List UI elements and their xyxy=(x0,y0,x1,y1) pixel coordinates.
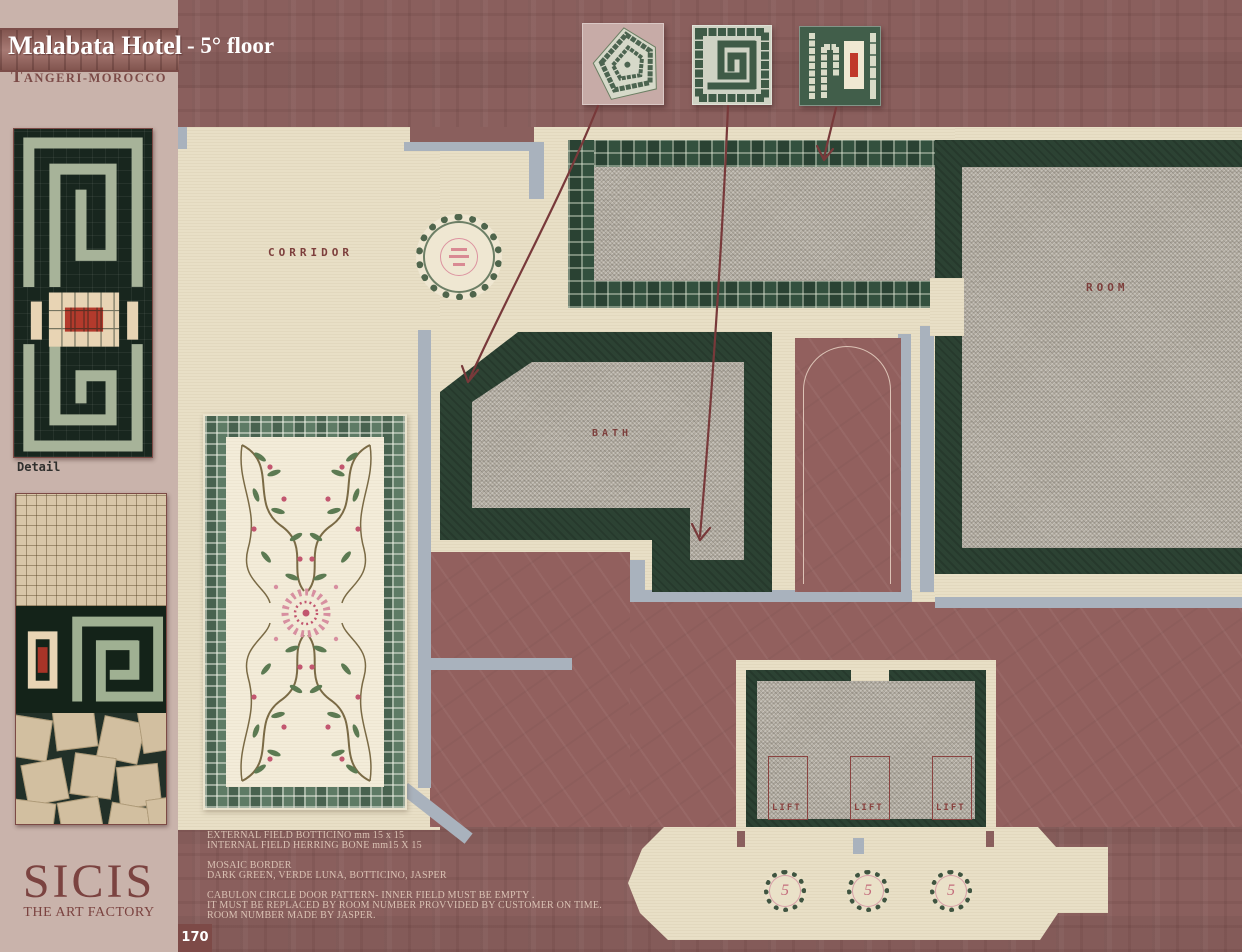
location-label: Tangeri-morocco xyxy=(0,67,178,87)
note-line: ROOM NUMBER MADE BY JASPER. xyxy=(207,911,727,921)
entry-field xyxy=(594,167,955,281)
sicis-logo: SICIS xyxy=(0,858,178,906)
lobby-door-stub xyxy=(853,838,864,854)
lift-3: LIFT xyxy=(932,756,972,820)
wall-segment xyxy=(404,142,544,151)
room-door-gap xyxy=(930,278,964,336)
greek-key-icon xyxy=(693,26,771,104)
swatch-jasper-detail xyxy=(799,26,881,106)
carpet-field xyxy=(226,437,384,787)
mosaic-detail-photo-1 xyxy=(13,128,153,458)
mosaic-detail-photo-2 xyxy=(15,493,167,825)
greek-key-band-icon xyxy=(16,606,166,713)
botticino-tile-sample xyxy=(16,494,166,606)
notes: EXTERNAL FIELD BOTTICINO mm 15 x 15 INTE… xyxy=(207,831,727,921)
lobby-slit xyxy=(737,831,745,847)
corner-meander-icon xyxy=(583,24,663,104)
room-number: 5 xyxy=(947,882,955,899)
wall-segment xyxy=(630,560,645,602)
room-number-medallion-1: 5 xyxy=(764,870,806,912)
greek-key-mosaic xyxy=(14,129,152,457)
mosaic-border-bottom xyxy=(568,281,955,308)
cabulon-door-medallion xyxy=(416,214,502,300)
lift-1: LIFT xyxy=(768,756,808,820)
cabulon-center-marks xyxy=(453,263,465,266)
cabulon-center-marks xyxy=(451,248,467,251)
lift-label: LIFT xyxy=(936,803,966,813)
note-line: INTERNAL FIELD HERRING BONE mm15 X 15 xyxy=(207,841,727,851)
note-line: DARK GREEN, VERDE LUNA, BOTTICINO, JASPE… xyxy=(207,871,727,881)
door-arch xyxy=(795,338,901,592)
room-bottom-strip xyxy=(935,574,1242,598)
wall-segment xyxy=(178,127,187,149)
wall-stub-top xyxy=(410,127,534,143)
bath-label: BATH xyxy=(592,428,632,439)
tumbled-tile-sample xyxy=(16,713,166,824)
room-field xyxy=(962,167,1242,548)
swatch-corner-detail xyxy=(582,23,664,105)
room-top-strip xyxy=(955,127,1242,141)
page-number: 170 xyxy=(178,924,212,952)
service-zone-left xyxy=(430,552,630,827)
lift-label: LIFT xyxy=(854,803,884,813)
hotel-title: Malabata Hotel xyxy=(8,31,208,61)
lift-2: LIFT xyxy=(850,756,890,820)
room-number-medallion-2: 5 xyxy=(847,870,889,912)
wall-segment xyxy=(920,326,934,592)
floor-label: - 5° floor xyxy=(187,33,274,59)
mosaic-border-left xyxy=(568,140,594,308)
floor-plan: ROOM BATH CORRIDOR xyxy=(0,0,1242,952)
cabulon-center xyxy=(440,238,478,276)
wall-segment xyxy=(425,658,572,670)
carpet xyxy=(203,414,407,810)
corridor-label: CORRIDOR xyxy=(268,246,353,259)
swatch-meander-detail xyxy=(692,25,772,105)
wall-segment xyxy=(529,142,544,199)
logo-subtitle: THE ART FACTORY xyxy=(0,905,178,921)
lift-label: LIFT xyxy=(772,803,802,813)
room-number: 5 xyxy=(781,882,789,899)
room-number: 5 xyxy=(864,882,872,899)
lobby-slit xyxy=(986,831,994,847)
entry-walkway xyxy=(568,140,955,308)
room-label: ROOM xyxy=(1086,281,1129,294)
wall-segment xyxy=(418,330,431,788)
mosaic-border-top xyxy=(568,140,955,167)
wall-segment xyxy=(935,597,1242,608)
jasper-number-field-icon xyxy=(800,27,880,105)
detail-caption: Detail xyxy=(17,460,60,474)
cabulon-center-marks xyxy=(449,255,469,258)
door-arch-outline xyxy=(803,346,891,584)
greek-key-sample xyxy=(16,606,166,713)
carpet-floral-pattern xyxy=(226,437,386,789)
room-number-medallion-3: 5 xyxy=(930,870,972,912)
